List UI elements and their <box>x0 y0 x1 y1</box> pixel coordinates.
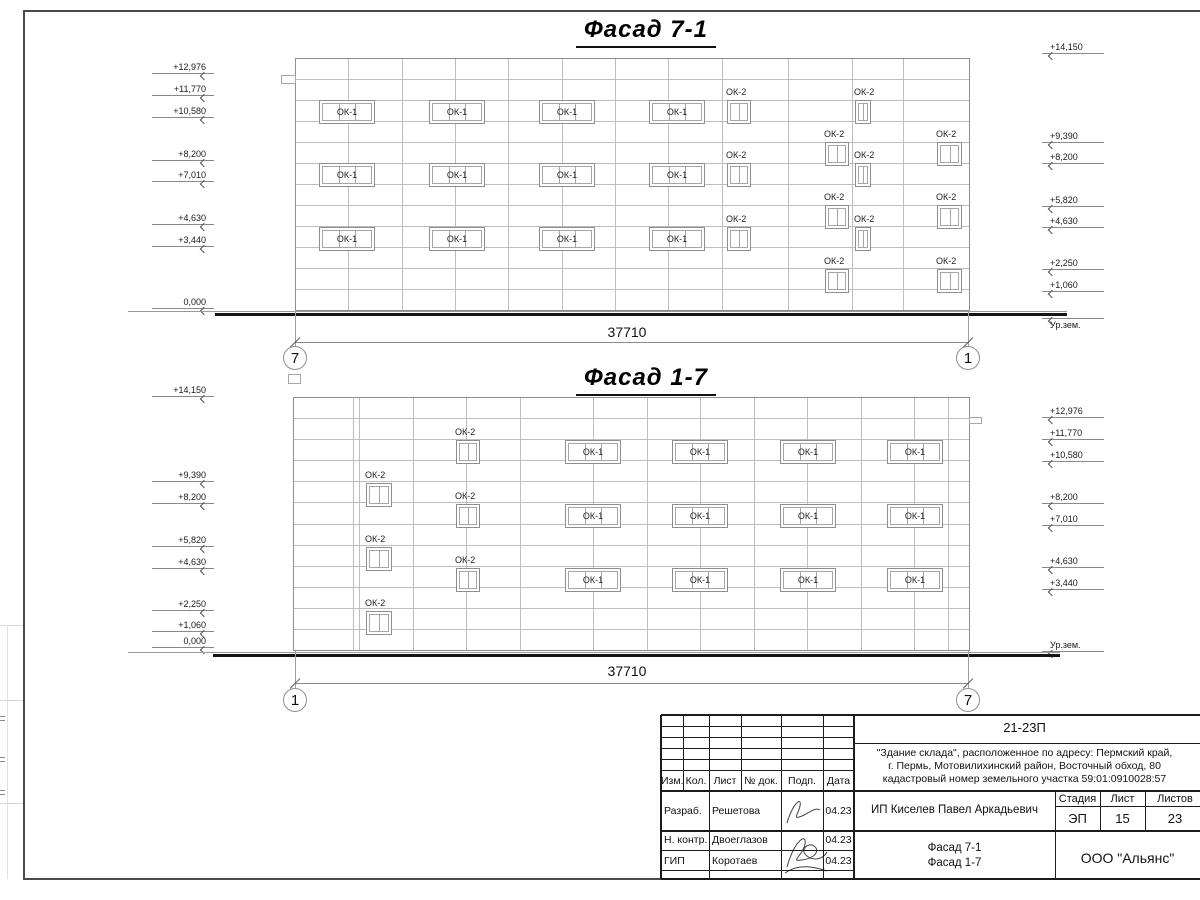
window-mullion <box>837 273 838 289</box>
window-ok1: ОК-1 <box>649 163 705 187</box>
window-mullion <box>685 167 686 183</box>
margin-mark <box>0 794 5 795</box>
window-ok1: ОК-1 <box>565 504 621 528</box>
margin-divider <box>0 625 23 626</box>
col-header-list: Лист <box>709 775 741 788</box>
window-mullion <box>708 508 709 524</box>
column-line <box>359 397 360 651</box>
elevation-mark-label: +2,250 <box>1042 258 1104 268</box>
window-ok2 <box>727 100 751 124</box>
window-mullion <box>339 104 340 120</box>
axis-extension-line <box>968 651 969 688</box>
window-label: ОК-2 <box>936 192 956 202</box>
elevation-tick <box>1048 226 1056 234</box>
client-name: ИП Киселев Павел Аркадьевич <box>854 804 1055 818</box>
window-mullion <box>739 104 740 120</box>
window-inner <box>652 230 702 248</box>
elevation-mark-line <box>152 181 214 182</box>
elevation-mark-line <box>152 546 214 547</box>
titleblock-rule <box>660 715 662 879</box>
panel-joint-line <box>293 629 970 630</box>
window-label: ОК-1 <box>566 569 620 591</box>
titleblock-rule <box>661 770 854 771</box>
window-mullion <box>449 231 450 247</box>
titleblock-rule <box>823 715 824 879</box>
elevation-mark-line <box>1042 651 1104 652</box>
panel-joint-line <box>293 587 970 588</box>
window-mullion <box>816 572 817 588</box>
parapet-tab <box>969 417 982 424</box>
titleblock-rule <box>1055 791 1056 879</box>
panel-joint-line <box>293 439 970 440</box>
project-address-line1: "Здание склада", расположенное по адресу… <box>858 747 1191 760</box>
elevation-tick <box>1048 205 1056 213</box>
elevation-tick <box>200 567 208 575</box>
window-mullion <box>923 508 924 524</box>
elevation-tick <box>200 245 208 253</box>
elevation-tick <box>1048 268 1056 276</box>
window-ok1: ОК-1 <box>649 227 705 251</box>
sheet-label: Лист <box>1100 793 1145 806</box>
window-ok1: ОК-1 <box>672 568 728 592</box>
elevation-tick <box>1048 438 1056 446</box>
elevation-mark-label: +5,820 <box>152 535 214 545</box>
window-mullion <box>339 167 340 183</box>
window-mullion <box>559 167 560 183</box>
role-nkontr: Н. контр. <box>664 834 712 847</box>
window-ok2 <box>456 568 480 592</box>
window-mullion <box>379 487 380 503</box>
window-mullion <box>950 146 951 162</box>
window-inner <box>858 230 868 248</box>
window-label: ОК-2 <box>936 256 956 266</box>
elevation-mark-label: +9,390 <box>1042 131 1104 141</box>
window-ok1: ОК-1 <box>429 163 485 187</box>
facade-title: Фасад 1-7 <box>576 364 716 396</box>
window-mullion <box>339 231 340 247</box>
margin-line <box>7 625 8 879</box>
elevation-mark-line <box>1042 567 1104 568</box>
elevation-tick <box>1048 52 1056 60</box>
dimension-tick <box>290 678 301 689</box>
titleblock-rule <box>661 737 854 738</box>
window-ok2 <box>456 504 480 528</box>
margin-mark <box>0 716 5 717</box>
window-label: ОК-1 <box>540 101 594 123</box>
panel-joint-line <box>295 226 970 227</box>
panel-joint-line <box>295 268 970 269</box>
window-label: ОК-1 <box>781 505 835 527</box>
window-label: ОК-2 <box>726 214 746 224</box>
window-inner <box>568 507 618 525</box>
panel-joint-line <box>295 121 970 122</box>
dimension-line <box>295 683 968 684</box>
signature-razrab <box>784 794 822 828</box>
sheet-number: 15 <box>1100 811 1145 827</box>
window-mullion <box>559 231 560 247</box>
window-label: ОК-1 <box>650 228 704 250</box>
elevation-mark-label: +10,580 <box>152 106 214 116</box>
panel-joint-line <box>293 608 970 609</box>
window-mullion <box>575 167 576 183</box>
panel-joint-line <box>293 524 970 525</box>
elevation-mark-label: +10,580 <box>1042 450 1104 460</box>
elevation-mark-label: +8,200 <box>1042 152 1104 162</box>
window-inner <box>940 208 959 226</box>
window-mullion <box>923 572 924 588</box>
elevation-mark-line <box>152 308 214 309</box>
window-ok2 <box>937 269 962 293</box>
elevation-tick <box>1048 502 1056 510</box>
drawing-sheet: 21-23П "Здание склада", расположенное по… <box>0 0 1200 900</box>
elevation-mark-label: 0,000 <box>152 636 214 646</box>
window-label: ОК-2 <box>854 214 874 224</box>
dimension-tick <box>290 337 301 348</box>
window-inner <box>828 145 846 163</box>
window-inner <box>890 507 940 525</box>
window-inner <box>369 614 389 632</box>
window-label: ОК-1 <box>430 101 484 123</box>
window-mullion <box>449 104 450 120</box>
elevation-tick <box>1048 290 1056 298</box>
window-label: ОК-2 <box>365 470 385 480</box>
window-ok1: ОК-1 <box>565 440 621 464</box>
elevation-mark-line <box>1042 53 1104 54</box>
window-inner <box>432 166 482 184</box>
window-mullion <box>692 508 693 524</box>
elevation-tick <box>200 307 208 315</box>
elevation-mark-line <box>152 647 214 648</box>
elevation-tick <box>200 630 208 638</box>
name-nkontr: Двоеглазов <box>712 834 780 847</box>
titleblock-rule <box>1055 806 1200 807</box>
column-line <box>520 397 521 651</box>
window-ok1: ОК-1 <box>565 568 621 592</box>
window-mullion <box>837 209 838 225</box>
elevation-mark-label: +4,630 <box>1042 556 1104 566</box>
window-mullion <box>685 231 686 247</box>
window-label: ОК-1 <box>673 441 727 463</box>
window-mullion <box>863 167 864 183</box>
window-inner <box>322 103 372 121</box>
titleblock-rule <box>709 715 710 879</box>
elevation-mark-label: +8,200 <box>1042 492 1104 502</box>
window-inner <box>459 443 477 461</box>
column-line <box>413 397 414 651</box>
window-ok2 <box>937 142 962 166</box>
titleblock-rule <box>661 870 854 871</box>
column-line <box>402 58 403 311</box>
window-mullion <box>708 572 709 588</box>
elevation-mark-label: +2,250 <box>152 599 214 609</box>
window-label: ОК-2 <box>455 491 475 501</box>
dimension-tick <box>963 678 974 689</box>
window-inner <box>568 443 618 461</box>
column-line <box>647 397 648 651</box>
window-mullion <box>575 231 576 247</box>
doc-number: 21-23П <box>856 720 1193 736</box>
elevation-mark-label: +11,770 <box>1042 428 1104 438</box>
elevation-mark-label: +1,060 <box>152 620 214 630</box>
window-inner <box>568 571 618 589</box>
panel-joint-line <box>295 289 970 290</box>
titleblock-rule <box>661 878 1200 880</box>
elevation-mark-line <box>1042 291 1104 292</box>
window-inner <box>542 230 592 248</box>
elevation-mark-label: +4,630 <box>1042 216 1104 226</box>
column-line <box>668 58 669 311</box>
window-mullion <box>465 167 466 183</box>
col-header-data: Дата <box>823 775 854 788</box>
window-label: ОК-2 <box>726 87 746 97</box>
axis-extension-line <box>295 651 296 688</box>
window-label: ОК-2 <box>854 87 874 97</box>
window-mullion <box>800 508 801 524</box>
window-ok1: ОК-1 <box>539 100 595 124</box>
elevation-tick <box>1048 566 1056 574</box>
elevation-mark-line <box>1042 461 1104 462</box>
margin-divider <box>0 700 23 701</box>
panel-joint-line <box>293 502 970 503</box>
window-label: ОК-2 <box>854 150 874 160</box>
elevation-tick <box>200 502 208 510</box>
window-label: ОК-2 <box>365 598 385 608</box>
sheets-total-label: Листов <box>1145 793 1200 806</box>
column-line <box>722 58 723 311</box>
window-mullion <box>800 444 801 460</box>
col-header-podp: Подп. <box>781 775 823 788</box>
window-mullion <box>669 231 670 247</box>
column-line <box>754 397 755 651</box>
window-label: ОК-1 <box>673 505 727 527</box>
column-line <box>455 58 456 311</box>
elevation-tick <box>200 545 208 553</box>
window-inner <box>652 166 702 184</box>
window-mullion <box>708 444 709 460</box>
window-ok1: ОК-1 <box>887 568 943 592</box>
window-mullion <box>355 231 356 247</box>
elevation-tick <box>1048 524 1056 532</box>
window-ok1: ОК-1 <box>672 504 728 528</box>
window-mullion <box>692 572 693 588</box>
elevation-tick <box>200 646 208 654</box>
axis-circle: 7 <box>956 688 980 712</box>
window-mullion <box>465 104 466 120</box>
elevation-mark-line <box>1042 318 1104 319</box>
titleblock-rule <box>661 748 854 749</box>
elevation-mark-line <box>152 160 214 161</box>
axis-circle: 7 <box>283 346 307 370</box>
window-mullion <box>669 167 670 183</box>
elevation-tick <box>200 159 208 167</box>
elevation-mark-label: +8,200 <box>152 149 214 159</box>
elevation-mark-label: +8,200 <box>152 492 214 502</box>
elevation-mark-label: 0,000 <box>152 297 214 307</box>
window-mullion <box>559 104 560 120</box>
panel-joint-line <box>295 79 970 80</box>
window-ok1: ОК-1 <box>319 227 375 251</box>
titleblock-rule <box>661 726 854 727</box>
elevation-tick <box>200 116 208 124</box>
elevation-mark-line <box>1042 227 1104 228</box>
window-mullion <box>923 444 924 460</box>
axis-extension-line <box>968 311 969 346</box>
elevation-mark-label: +4,630 <box>152 213 214 223</box>
elevation-mark-label: +1,060 <box>1042 280 1104 290</box>
window-inner <box>828 208 846 226</box>
column-line <box>861 397 862 651</box>
column-line <box>852 58 853 311</box>
sheet-title-line1: Фасад 7-1 <box>854 842 1055 856</box>
elevation-mark-label: +9,390 <box>152 470 214 480</box>
elevation-mark-label: +12,976 <box>1042 406 1104 416</box>
titleblock-rule <box>661 830 1200 832</box>
elevation-mark-label: +11,770 <box>152 84 214 94</box>
elevation-mark-line <box>152 631 214 632</box>
window-ok1: ОК-1 <box>539 163 595 187</box>
facade-outline <box>295 58 970 311</box>
elevation-mark-line <box>152 117 214 118</box>
window-ok2 <box>366 611 392 635</box>
column-line <box>948 397 949 651</box>
window-ok1: ОК-1 <box>319 163 375 187</box>
window-ok2 <box>825 269 849 293</box>
elevation-mark-line <box>1042 525 1104 526</box>
column-line <box>914 397 915 651</box>
elevation-mark-line <box>152 503 214 504</box>
elevation-mark-line <box>152 95 214 96</box>
window-mullion <box>601 508 602 524</box>
titleblock-rule <box>741 715 742 791</box>
window-ok2 <box>855 227 871 251</box>
window-label: ОК-1 <box>673 569 727 591</box>
column-line <box>615 58 616 311</box>
window-label: ОК-1 <box>430 164 484 186</box>
window-ok2 <box>825 142 849 166</box>
elevation-mark-label: +12,976 <box>152 62 214 72</box>
window-ok1: ОК-1 <box>539 227 595 251</box>
window-inner <box>432 103 482 121</box>
project-address-line2: г. Пермь, Мотовилихинский район, Восточн… <box>858 760 1191 773</box>
date-razrab: 04.23 <box>823 805 854 818</box>
panel-joint-line <box>295 163 970 164</box>
window-label: ОК-2 <box>824 129 844 139</box>
col-header-kol: Кол. <box>683 775 709 788</box>
elevation-tick <box>1048 162 1056 170</box>
parapet-tab <box>288 374 301 384</box>
titleblock-rule <box>853 715 855 879</box>
window-mullion <box>816 444 817 460</box>
column-line <box>353 397 354 651</box>
window-mullion <box>575 104 576 120</box>
window-inner <box>369 486 389 504</box>
col-header-ndok: № док. <box>741 775 781 788</box>
company-name: ООО "Альянс" <box>1055 850 1200 867</box>
elevation-tick <box>1048 650 1056 658</box>
window-mullion <box>585 508 586 524</box>
panel-joint-line <box>295 184 970 185</box>
name-razrab: Решетова <box>712 805 780 818</box>
elevation-mark-line <box>152 246 214 247</box>
window-label: ОК-1 <box>540 228 594 250</box>
col-header-izm: Изм. <box>661 775 683 788</box>
window-mullion <box>355 167 356 183</box>
column-line <box>807 397 808 651</box>
dimension-tick <box>963 337 974 348</box>
parapet-tab <box>281 75 296 84</box>
ground-line-thin <box>128 652 1060 653</box>
window-ok2 <box>937 205 962 229</box>
stage-value: ЭП <box>1055 811 1100 827</box>
column-line <box>903 58 904 311</box>
window-label: ОК-2 <box>936 129 956 139</box>
window-mullion <box>468 572 469 588</box>
titleblock-rule <box>1145 791 1146 831</box>
titleblock-rule <box>781 715 782 879</box>
facade-outline <box>293 397 970 651</box>
elevation-mark-line <box>1042 439 1104 440</box>
ground-line <box>213 654 1060 657</box>
window-ok2 <box>825 205 849 229</box>
window-inner <box>542 103 592 121</box>
titleblock-rule <box>661 790 1200 792</box>
window-label: ОК-2 <box>455 555 475 565</box>
margin-mark <box>0 757 5 758</box>
window-mullion <box>449 167 450 183</box>
window-mullion <box>800 572 801 588</box>
titleblock-rule <box>661 714 1200 716</box>
window-ok2 <box>366 547 392 571</box>
elevation-mark-label: Ур.зем. <box>1042 320 1104 330</box>
column-line <box>348 58 349 311</box>
ground-line <box>215 313 1067 316</box>
role-gip: ГИП <box>664 855 710 868</box>
elevation-tick <box>1048 460 1056 468</box>
elevation-mark-line <box>1042 206 1104 207</box>
panel-joint-line <box>293 418 970 419</box>
window-label: ОК-2 <box>365 534 385 544</box>
window-label: ОК-1 <box>781 569 835 591</box>
elevation-tick <box>1048 141 1056 149</box>
elevation-mark-line <box>1042 503 1104 504</box>
elevation-mark-line <box>1042 163 1104 164</box>
window-ok1: ОК-1 <box>780 504 836 528</box>
elevation-tick <box>200 480 208 488</box>
window-inner <box>432 230 482 248</box>
elevation-mark-label: Ур.зем. <box>1042 640 1104 650</box>
panel-joint-line <box>295 142 970 143</box>
window-ok1: ОК-1 <box>672 440 728 464</box>
elevation-tick <box>200 609 208 617</box>
elevation-mark-line <box>1042 269 1104 270</box>
margin-mark <box>0 790 5 791</box>
elevation-mark-line <box>152 396 214 397</box>
window-inner <box>858 103 868 121</box>
panel-joint-line <box>293 545 970 546</box>
stage-label: Стадия <box>1055 793 1100 806</box>
elevation-mark-line <box>152 610 214 611</box>
window-label: ОК-2 <box>726 150 746 160</box>
window-inner <box>459 571 477 589</box>
panel-joint-line <box>295 247 970 248</box>
window-mullion <box>379 551 380 567</box>
window-label: ОК-1 <box>650 101 704 123</box>
window-label: ОК-1 <box>320 164 374 186</box>
window-label: ОК-1 <box>430 228 484 250</box>
window-inner <box>783 571 833 589</box>
elevation-mark-label: +3,440 <box>1042 578 1104 588</box>
window-mullion <box>950 273 951 289</box>
